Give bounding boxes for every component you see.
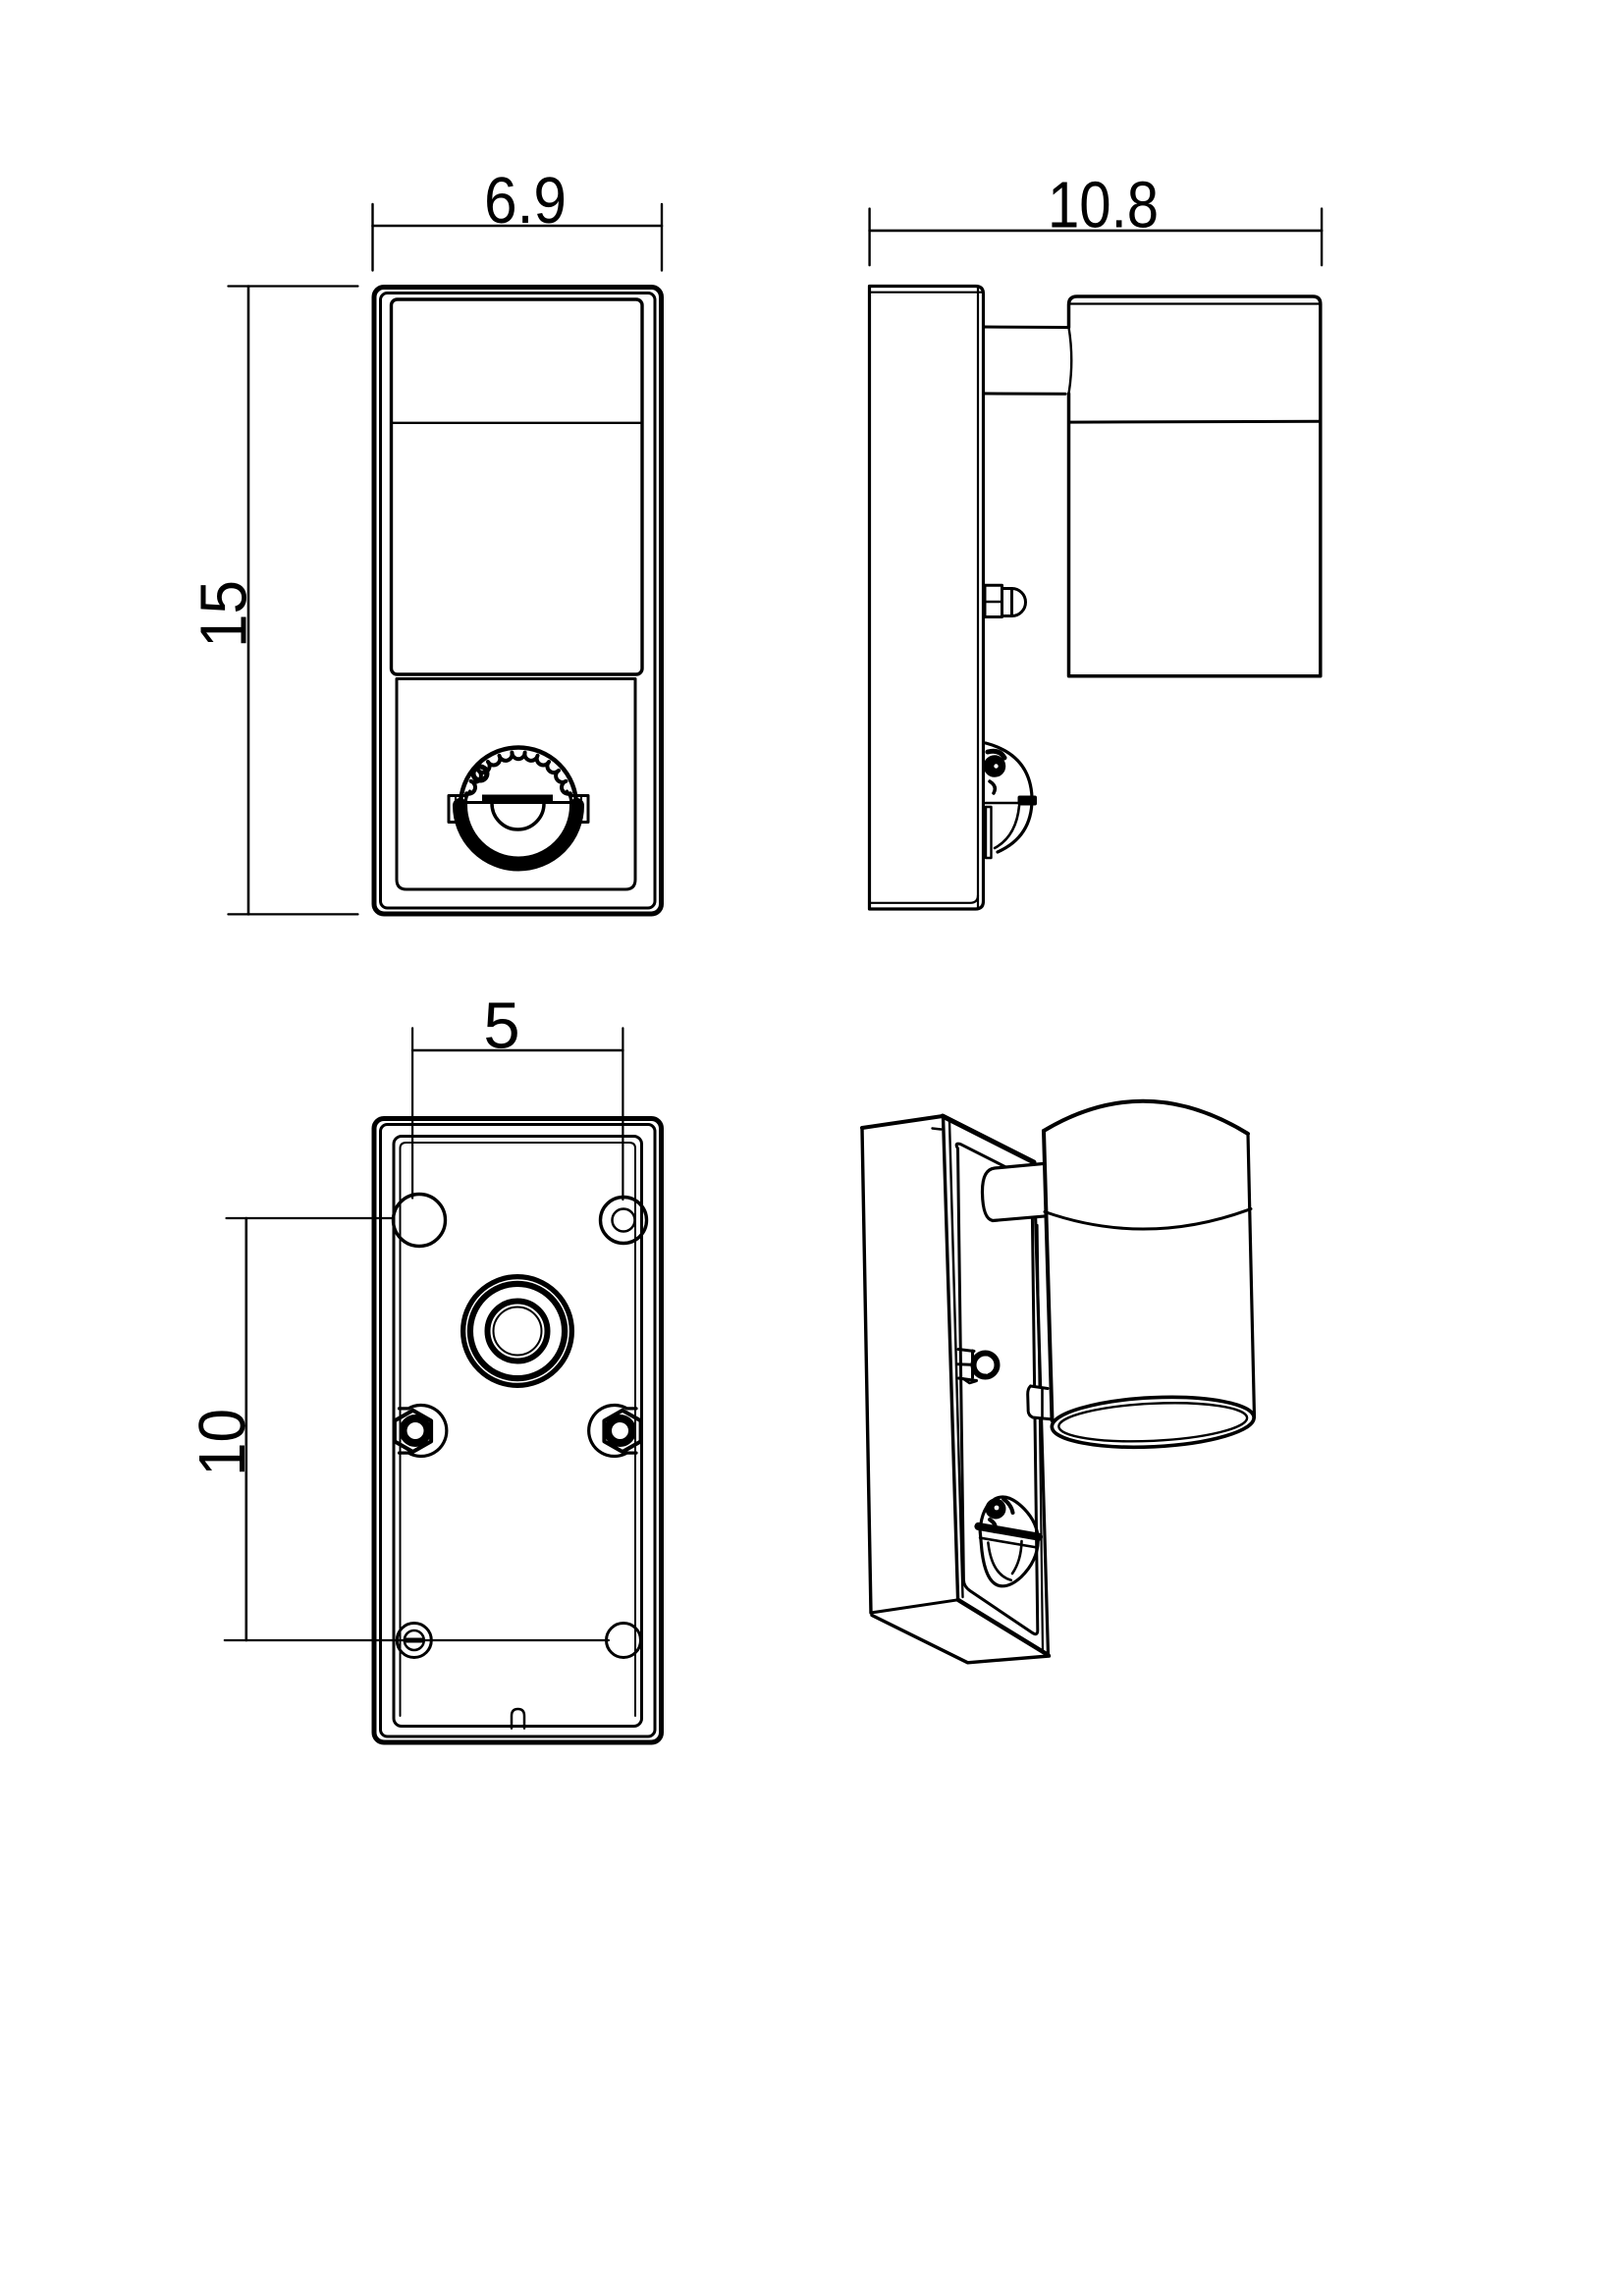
svg-text:6.9: 6.9: [484, 164, 567, 238]
svg-text:15: 15: [188, 580, 261, 648]
svg-text:5: 5: [483, 989, 519, 1063]
svg-text:10.8: 10.8: [1048, 169, 1159, 242]
svg-text:10: 10: [186, 1409, 259, 1476]
